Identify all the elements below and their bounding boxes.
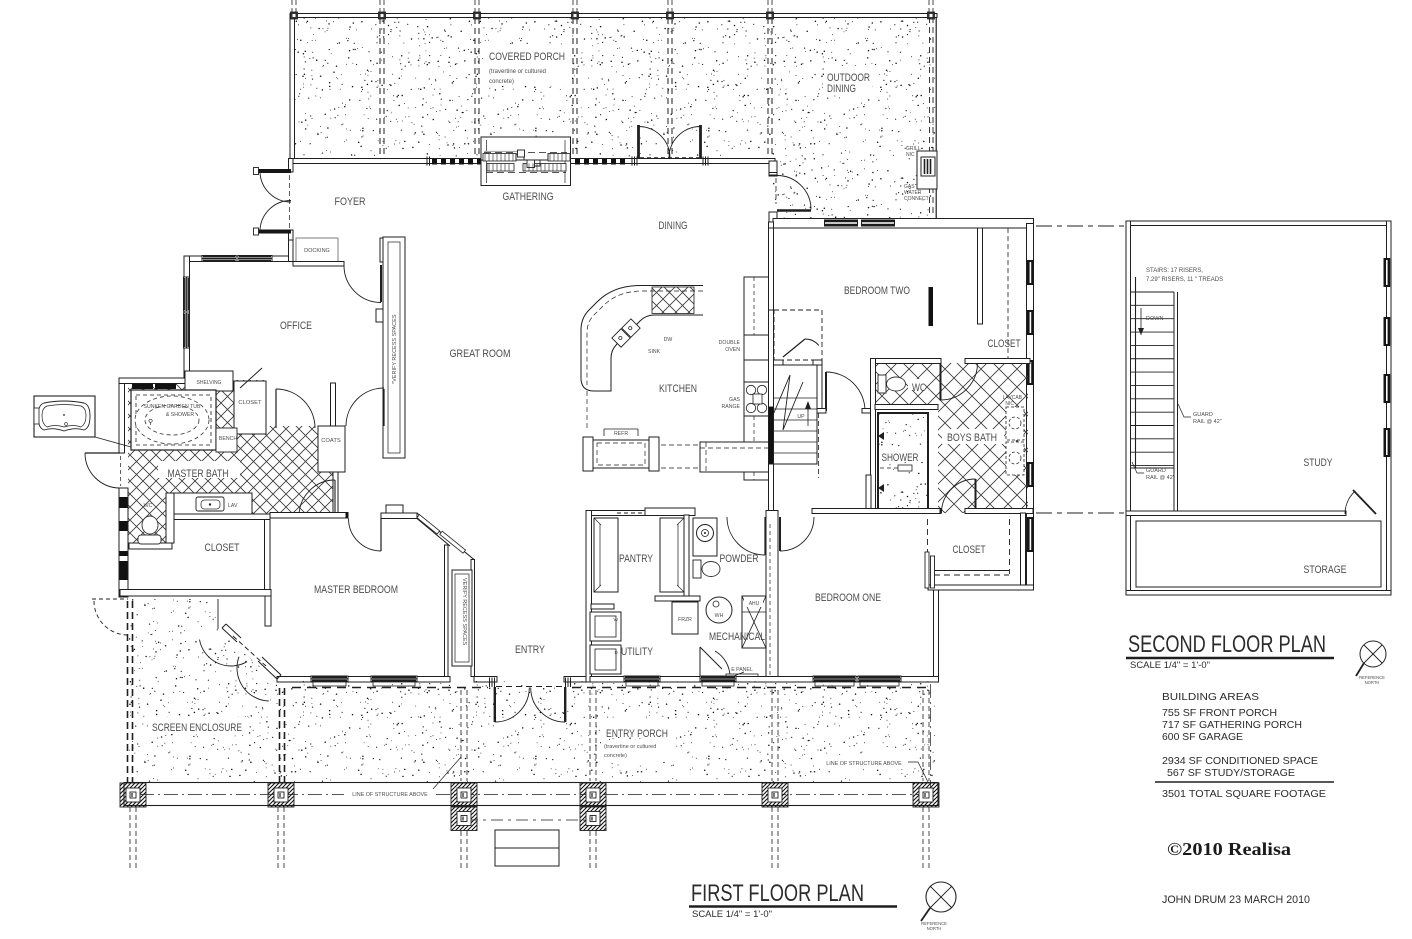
svg-text:BEDROOM ONE: BEDROOM ONE xyxy=(815,592,881,604)
svg-text:ENTRY: ENTRY xyxy=(515,644,546,656)
svg-text:NORTH: NORTH xyxy=(927,926,942,931)
svg-text:MASTER BATH: MASTER BATH xyxy=(168,468,229,480)
svg-text:AHU: AHU xyxy=(749,601,760,607)
svg-text:LAV: LAV xyxy=(228,503,238,509)
svg-text:ENTRY PORCH: ENTRY PORCH xyxy=(606,728,668,740)
svg-text:SUNKEN GARDEN TUB: SUNKEN GARDEN TUB xyxy=(144,404,202,410)
svg-text:RAIL @ 42": RAIL @ 42" xyxy=(1146,475,1175,481)
svg-text:GAS: GAS xyxy=(729,397,740,403)
svg-text:NIC: NIC xyxy=(1005,401,1014,407)
svg-text:DINING: DINING xyxy=(827,83,856,95)
svg-text:D: D xyxy=(615,650,619,656)
svg-text:UTILITY: UTILITY xyxy=(621,646,654,658)
svg-text:WC: WC xyxy=(144,503,153,509)
svg-text:WH: WH xyxy=(715,613,724,619)
svg-text:717 SF GATHERING PORCH: 717 SF GATHERING PORCH xyxy=(1162,719,1302,731)
svg-text:SECOND FLOOR PLAN: SECOND FLOOR PLAN xyxy=(1128,631,1326,658)
svg-text:2934 SF CONDITIONED SPACE: 2934 SF CONDITIONED SPACE xyxy=(1162,755,1318,767)
svg-text:7.29" RISERS, 11 " TREADS: 7.29" RISERS, 11 " TREADS xyxy=(1146,277,1223,283)
svg-text:CLOSET: CLOSET xyxy=(953,544,986,556)
svg-text:©2010 Realisa: ©2010 Realisa xyxy=(1167,839,1291,859)
svg-text:600 SF GARAGE: 600 SF GARAGE xyxy=(1162,731,1243,743)
svg-text:FOYER: FOYER xyxy=(335,196,366,208)
svg-text:BEDROOM TWO: BEDROOM TWO xyxy=(844,285,910,297)
svg-text:SCREEN ENCLOSURE: SCREEN ENCLOSURE xyxy=(152,722,242,734)
svg-text:COVERED PORCH: COVERED PORCH xyxy=(489,51,565,63)
svg-text:E PANEL: E PANEL xyxy=(731,667,753,673)
svg-text:STUDY: STUDY xyxy=(1304,457,1334,469)
svg-text:GUARD: GUARD xyxy=(1146,468,1166,474)
svg-text:concrete): concrete) xyxy=(489,79,514,85)
svg-text:JOHN DRUM 23 MARCH 2010: JOHN DRUM 23 MARCH 2010 xyxy=(1162,894,1310,906)
svg-text:STORAGE: STORAGE xyxy=(1304,564,1347,576)
svg-text:RANGE: RANGE xyxy=(722,404,741,410)
svg-text:UP: UP xyxy=(797,414,805,420)
svg-text:DOUBLE: DOUBLE xyxy=(719,340,741,346)
svg-text:567 SF STUDY/STORAGE: 567 SF STUDY/STORAGE xyxy=(1167,767,1295,779)
svg-text:OVEN: OVEN xyxy=(725,347,740,353)
svg-text:DOWN: DOWN xyxy=(1146,316,1163,322)
svg-text:MECHANICAL: MECHANICAL xyxy=(709,631,765,643)
svg-text:BENCH: BENCH xyxy=(219,436,237,442)
svg-text:BUILDING AREAS: BUILDING AREAS xyxy=(1162,691,1259,703)
svg-text:NIC: NIC xyxy=(906,152,915,158)
svg-text:WC: WC xyxy=(912,382,926,394)
svg-text:GREAT ROOM: GREAT ROOM xyxy=(450,348,511,360)
svg-text:SINK: SINK xyxy=(648,349,661,355)
svg-text:⚲: ⚲ xyxy=(148,418,153,426)
svg-text:GUARD: GUARD xyxy=(1193,412,1213,418)
svg-text:FIRST FLOOR PLAN: FIRST FLOOR PLAN xyxy=(691,880,864,907)
svg-text:CLOSET: CLOSET xyxy=(238,400,262,406)
svg-text:VERIFY RECESS SPACES: VERIFY RECESS SPACES xyxy=(461,578,467,646)
svg-text:PANTRY: PANTRY xyxy=(619,553,654,565)
svg-text:LINE OF STRUCTURE ABOVE: LINE OF STRUCTURE ABOVE xyxy=(352,792,428,798)
svg-text:*VERIFY RECESS SPACES: *VERIFY RECESS SPACES xyxy=(392,314,398,384)
svg-text:MASTER BEDROOM: MASTER BEDROOM xyxy=(314,584,398,596)
svg-text:CLOSET: CLOSET xyxy=(988,338,1021,350)
svg-text:DW: DW xyxy=(664,337,673,343)
svg-text:BOYS BATH: BOYS BATH xyxy=(947,432,997,444)
svg-text:OFFICE: OFFICE xyxy=(280,320,312,332)
svg-text:GATHERING: GATHERING xyxy=(503,191,554,203)
svg-text:SHOWER: SHOWER xyxy=(882,452,919,464)
svg-text:(travertine or cultured: (travertine or cultured xyxy=(604,744,656,750)
svg-text:SHELVING: SHELVING xyxy=(197,380,222,386)
svg-text:(travertine or cultured: (travertine or cultured xyxy=(489,69,546,75)
svg-text:KITCHEN: KITCHEN xyxy=(659,383,697,395)
svg-text:DOCKING: DOCKING xyxy=(304,248,330,254)
svg-text:NORTH: NORTH xyxy=(1365,680,1380,685)
svg-text:3501 TOTAL SQUARE FOOTAGE: 3501 TOTAL SQUARE FOOTAGE xyxy=(1162,788,1326,800)
svg-text:COATS: COATS xyxy=(321,438,341,444)
svg-text:SCALE 1/4" = 1'-0": SCALE 1/4" = 1'-0" xyxy=(692,909,772,919)
svg-text:concrete): concrete) xyxy=(604,753,627,759)
svg-text:CLOSET: CLOSET xyxy=(205,542,240,554)
svg-text:DINING: DINING xyxy=(659,220,688,232)
svg-text:STAIRS: 17 RISERS,: STAIRS: 17 RISERS, xyxy=(1146,268,1203,274)
svg-text:755 SF FRONT PORCH: 755 SF FRONT PORCH xyxy=(1162,707,1277,719)
svg-text:CONNECT: CONNECT xyxy=(904,196,929,202)
svg-text:FRZR: FRZR xyxy=(678,617,692,623)
svg-text:& SHOWER: & SHOWER xyxy=(166,412,194,418)
svg-text:POWDER: POWDER xyxy=(720,553,759,565)
svg-text:LINE OF STRUCTURE ABOVE: LINE OF STRUCTURE ABOVE xyxy=(826,761,902,767)
svg-text:SCALE 1/4" = 1'-0": SCALE 1/4" = 1'-0" xyxy=(1130,660,1210,670)
svg-text:REFR: REFR xyxy=(614,431,628,437)
svg-text:W: W xyxy=(613,617,618,623)
svg-text:RAIL @ 42": RAIL @ 42" xyxy=(1193,419,1222,425)
